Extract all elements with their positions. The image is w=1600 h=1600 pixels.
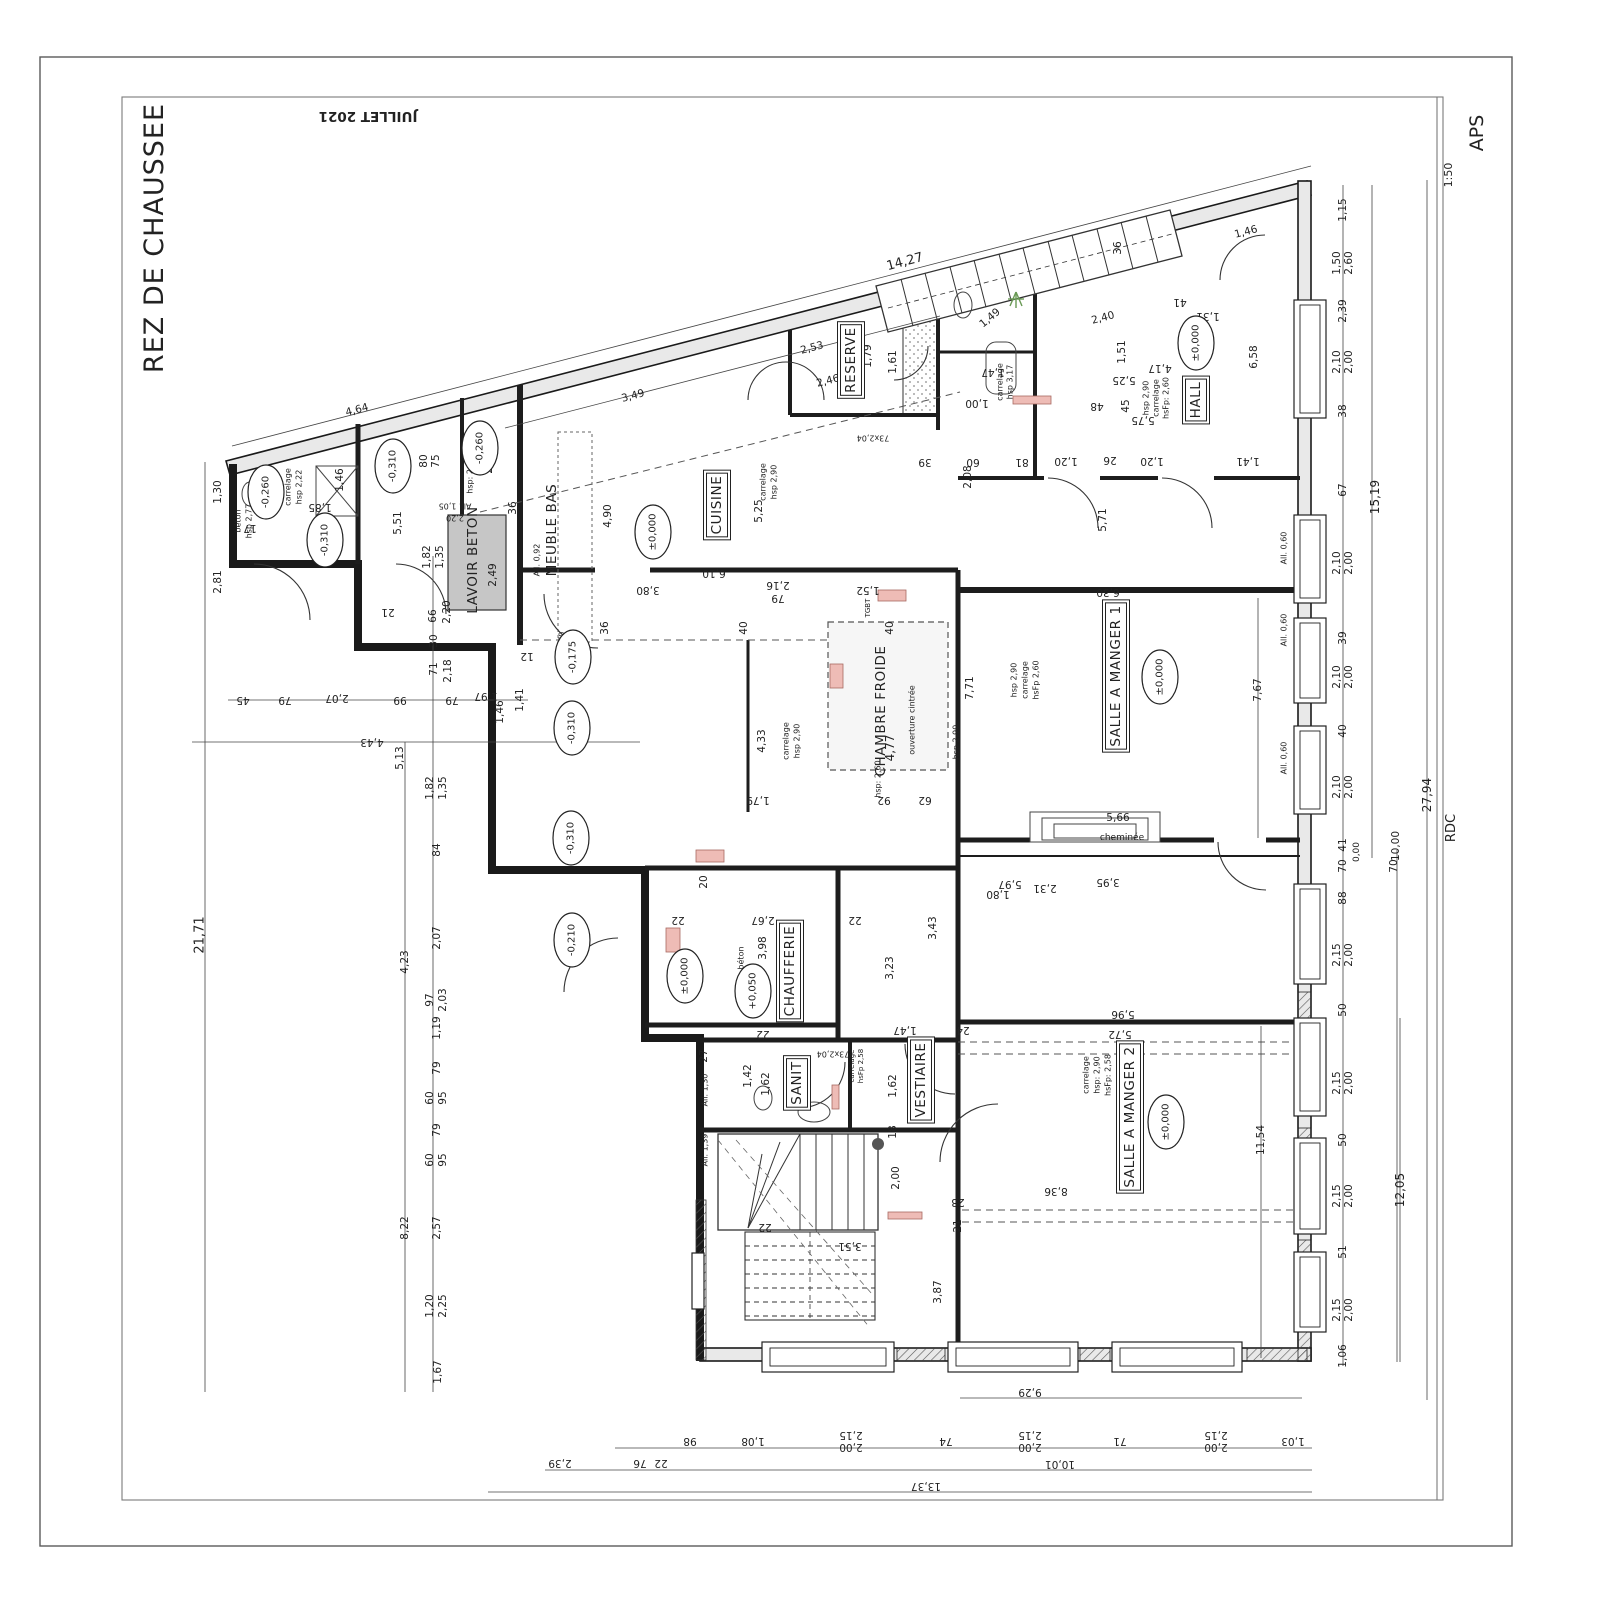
level-marker-value: ±0,000 bbox=[1161, 1103, 1172, 1140]
dimension-label: 6,58 bbox=[1248, 345, 1260, 368]
dimension-label: béton bbox=[736, 946, 746, 969]
dimension-label: 92 bbox=[877, 794, 890, 806]
dimension-label: 7,71 bbox=[964, 676, 976, 699]
dimension-label: 3,43 bbox=[927, 916, 939, 939]
dimension-label: 2,15 bbox=[1331, 1298, 1343, 1321]
dimension-label: 75 bbox=[430, 454, 442, 467]
dimension-label: 2,07 bbox=[431, 926, 443, 949]
door-arc bbox=[1220, 235, 1265, 280]
wall-hatch-pier bbox=[1298, 1240, 1311, 1253]
dimension-label: 81 bbox=[1015, 456, 1028, 468]
dimension-label: 71 bbox=[428, 662, 440, 675]
dimension-label: ouverture cintrée bbox=[907, 685, 917, 755]
dimension-label: carrelage bbox=[1082, 1056, 1091, 1094]
dimension-label: 5,71 bbox=[1097, 508, 1109, 531]
level-marker-value: -0,310 bbox=[320, 524, 331, 556]
dimension-label: carrelage bbox=[284, 468, 293, 506]
level-marker-value: -0,175 bbox=[568, 641, 579, 673]
dimension-label: 18 bbox=[887, 1125, 899, 1138]
dimension-label: hsp 2,90 bbox=[952, 725, 961, 760]
room-label: SALLE A MANGER 1 bbox=[1108, 605, 1124, 746]
dimension-label: 60 bbox=[424, 1091, 436, 1104]
door-arc bbox=[396, 564, 446, 614]
dimension-label: 1,62 bbox=[887, 1074, 899, 1097]
dimension-label: 5,72 bbox=[1108, 1028, 1131, 1040]
dimension-label: 2,00 bbox=[1343, 350, 1355, 373]
top-staircase bbox=[876, 210, 1182, 332]
dimension-label: 8,22 bbox=[399, 1216, 411, 1239]
scale-label: 1:50 bbox=[1442, 163, 1455, 188]
dimension-label: 1,03 bbox=[1281, 1435, 1304, 1447]
room-label: CHAMBRE FROIDE bbox=[873, 645, 889, 776]
door-arc bbox=[1218, 842, 1266, 890]
dimension-label: 2,40 bbox=[1090, 309, 1116, 327]
dimension-label: 22 bbox=[848, 914, 861, 926]
level-marker-value: -0,310 bbox=[566, 822, 577, 854]
dimension-label: All. 0,60 bbox=[1280, 532, 1289, 565]
room-label: CHAUFFERIE bbox=[782, 926, 798, 1017]
dimension-label: 9,29 bbox=[1018, 1386, 1041, 1398]
level-marker-value: ±0,000 bbox=[1191, 324, 1202, 361]
dimension-label: 2,00 bbox=[839, 1441, 862, 1453]
dimension-label: 2,39 bbox=[1337, 299, 1349, 322]
dimension-label: 5,25 bbox=[1112, 374, 1135, 386]
dimension-label: cheminée bbox=[1100, 832, 1145, 843]
dimension-label: 1,50 bbox=[1331, 251, 1343, 274]
dimension-label: 2,00 bbox=[1343, 1184, 1355, 1207]
dimension-label: 79 bbox=[431, 1061, 443, 1074]
dimension-label: 71 bbox=[1113, 1435, 1126, 1447]
dimension-label: 2,00 bbox=[1018, 1441, 1041, 1453]
dimension-label: 11,54 bbox=[1255, 1125, 1267, 1155]
dimension-label: hsp 2,90 bbox=[793, 724, 802, 759]
dimension-label: 2,60 bbox=[1343, 251, 1355, 274]
dimension-label: 3,51 bbox=[838, 1240, 861, 1252]
dimension-label: 45 bbox=[236, 694, 249, 706]
page-title: REZ DE CHAUSSEE bbox=[139, 103, 170, 373]
dimension-label: 51 bbox=[1337, 1245, 1349, 1258]
dimension-label: 1,61 bbox=[887, 350, 899, 373]
dimension-label: 79 bbox=[278, 694, 291, 706]
dimension-label: 40 bbox=[1337, 724, 1349, 737]
dimension-label: 2,10 bbox=[1331, 665, 1343, 688]
dimension-label: 24 bbox=[956, 1024, 970, 1036]
dimension-label: 2,10 bbox=[1331, 775, 1343, 798]
sheet-frame bbox=[40, 57, 1512, 1546]
room-label: LAVOIR BETON bbox=[465, 506, 481, 613]
dimension-label: 2,67 bbox=[751, 914, 774, 926]
wall-hatch-pier bbox=[1298, 992, 1311, 1020]
dimension-label: 2,00 bbox=[1343, 1298, 1355, 1321]
dimension-label: 1,08 bbox=[741, 1435, 764, 1447]
level-marker-value: -0,310 bbox=[388, 450, 399, 482]
dimension-label: 12 bbox=[520, 650, 533, 662]
dimension-label: 4,17 bbox=[1148, 362, 1171, 374]
meuble-bas-outline bbox=[558, 432, 592, 642]
room-label: MEUBLE BAS bbox=[544, 484, 560, 577]
dimension-label: 79 bbox=[771, 592, 784, 604]
floor-plan-sheet: REZ DE CHAUSSEE JUILLET 2021 APS 1:50 RD… bbox=[0, 0, 1600, 1600]
dimension-label: 1,20 bbox=[424, 1294, 436, 1317]
dimension-label: 26 bbox=[1103, 454, 1117, 466]
level-tag: RDC bbox=[1444, 814, 1459, 842]
dimension-label: 8,36 bbox=[1044, 1185, 1068, 1197]
dimension-label: 1,67 bbox=[432, 1360, 444, 1383]
dimension-label: 5,25 bbox=[753, 499, 765, 522]
dimension-label: 2,00 bbox=[1204, 1441, 1227, 1453]
dimension-label: 84 bbox=[431, 843, 443, 857]
dimension-label: 1,20 bbox=[1140, 455, 1163, 467]
phase-label: APS bbox=[1466, 115, 1488, 152]
dimension-label: All. 0,92 bbox=[533, 544, 542, 577]
dimension-label: 2,39 bbox=[548, 1457, 571, 1469]
wall-hatch-pier bbox=[1080, 1348, 1110, 1361]
dimension-label: 2,00 bbox=[1343, 775, 1355, 798]
dimension-label: 1,35 bbox=[437, 776, 449, 799]
dimension-label: 99 bbox=[393, 694, 406, 706]
dimension-label: 21 bbox=[952, 1219, 964, 1232]
dimension-label: 40 bbox=[738, 621, 750, 634]
date-stamp: JUILLET 2021 bbox=[319, 108, 419, 124]
dimension-label: 13,37 bbox=[911, 1480, 941, 1492]
dimension-label: 45 bbox=[1120, 399, 1132, 412]
dimension-label: hsp 2,90 bbox=[770, 465, 779, 500]
dimension-label: 15,19 bbox=[1368, 480, 1382, 514]
dimension-label: 2,15 bbox=[1331, 943, 1343, 966]
dimension-label: 48 bbox=[1090, 400, 1103, 412]
dimension-label: hsFp: 2,60 bbox=[1162, 377, 1171, 419]
room-label: SANIT bbox=[789, 1061, 805, 1105]
level-marker-value: +0,050 bbox=[748, 972, 759, 1009]
dimension-label: 70 bbox=[1337, 859, 1349, 872]
door-arc bbox=[254, 564, 310, 620]
dimension-label: 1,00 bbox=[965, 397, 988, 409]
dimension-label: 7,67 bbox=[1252, 678, 1264, 701]
dimension-label: carrelage bbox=[1152, 379, 1161, 417]
dimension-label: 5,51 bbox=[392, 511, 404, 534]
dimension-label: All. 1,39 bbox=[701, 1134, 710, 1167]
dimension-label: hsp: 2,90 bbox=[1093, 1056, 1102, 1093]
dimension-label: hsFp 2,60 bbox=[1032, 660, 1041, 699]
dimension-label: 20 bbox=[698, 875, 710, 888]
dimension-label: 2,81 bbox=[212, 570, 224, 593]
dimension-label: 1,52 bbox=[856, 584, 879, 596]
dimension-label: 98 bbox=[683, 1435, 696, 1447]
dimension-label: 60 bbox=[966, 456, 979, 468]
dimension-label: 50 bbox=[1337, 1133, 1349, 1146]
dimension-label: 73x2,04 bbox=[857, 434, 890, 443]
dimension-label: 2,00 bbox=[1343, 1071, 1355, 1094]
dimension-label: hsFp: 2,58 bbox=[1104, 1054, 1113, 1096]
left-window bbox=[692, 1253, 704, 1309]
dimension-label: 1,42 bbox=[742, 1064, 754, 1087]
dimension-label: 1,80 bbox=[986, 888, 1009, 900]
dimension-label: 2,53 bbox=[799, 339, 825, 357]
dimension-label: 2,15 bbox=[1331, 1184, 1343, 1207]
dimension-label: hsFp 2,58 bbox=[857, 1049, 865, 1083]
dimension-label: hsp 2,22 bbox=[295, 470, 304, 505]
dimension-label: 4,23 bbox=[399, 950, 411, 973]
dimension-label: 2,25 bbox=[437, 1294, 449, 1317]
dimension-label: 1,46 bbox=[334, 468, 346, 492]
dimension-label: 22 bbox=[758, 1221, 771, 1233]
bottom-staircase bbox=[718, 1134, 884, 1328]
outer-border bbox=[40, 57, 1512, 1546]
level-marker-value: ±0,000 bbox=[1155, 658, 1166, 695]
dimension-label: 0,00 bbox=[1352, 842, 1362, 862]
dimension-label: 41 bbox=[1173, 296, 1186, 308]
dimension-label: 2,15 bbox=[1018, 1429, 1041, 1441]
dimension-label: 27 bbox=[698, 1049, 710, 1062]
room-label: RESERVE bbox=[843, 327, 859, 393]
dimension-label: 1,46 bbox=[1233, 223, 1259, 241]
level-marker-value: -0,210 bbox=[567, 924, 578, 956]
dimension-label: 95 bbox=[437, 1153, 449, 1166]
dimension-label: 4,90 bbox=[602, 504, 614, 527]
dimension-label: 39 bbox=[1337, 631, 1349, 644]
dimension-label: 2,00 bbox=[890, 1166, 902, 1189]
dimension-label: 1,97 bbox=[474, 690, 497, 702]
dimension-label: 66 bbox=[427, 609, 439, 623]
dimension-label: 1,49 bbox=[977, 306, 1003, 330]
dimension-label: 22 bbox=[671, 914, 684, 926]
dimension-label: 28 bbox=[951, 1196, 964, 1208]
dimension-label: 22 bbox=[654, 1457, 667, 1469]
dimension-label: 60 bbox=[424, 1153, 436, 1166]
dimension-label: carrelage bbox=[759, 463, 768, 501]
dimension-label: 1,20 bbox=[1054, 455, 1077, 467]
dimension-label: 1,51 bbox=[1116, 340, 1128, 363]
dimension-label: 14,27 bbox=[885, 250, 925, 274]
dimension-label: 2,15 bbox=[839, 1429, 862, 1441]
dimension-label: All. 1,30 bbox=[701, 1074, 710, 1107]
dimension-label: 95 bbox=[437, 1091, 449, 1104]
dimension-label: 50 bbox=[1337, 1003, 1349, 1016]
dimension-label: 2,10 bbox=[1331, 350, 1343, 373]
door-arc bbox=[748, 362, 786, 400]
dimension-label: 21 bbox=[381, 606, 394, 618]
room-label: CUISINE bbox=[709, 476, 725, 535]
dimension-label: 1,79 bbox=[746, 794, 769, 806]
dimension-label: hsp 2,90 bbox=[1010, 663, 1019, 698]
dimension-label: 3,80 bbox=[636, 584, 659, 596]
dimension-label: 2,20 bbox=[441, 600, 453, 623]
dimension-label: 4,33 bbox=[756, 729, 768, 752]
dimension-label: 3,98 bbox=[757, 936, 769, 959]
dimension-label: 10,01 bbox=[1045, 1458, 1075, 1470]
dimension-label: 27,94 bbox=[1420, 778, 1434, 812]
dimension-label: 10,00 bbox=[1390, 831, 1402, 861]
door-arc bbox=[940, 1104, 998, 1162]
dimension-label: 88 bbox=[1337, 891, 1349, 904]
dimension-label: 1,41 bbox=[514, 688, 526, 711]
level-marker-value: ±0,000 bbox=[680, 957, 691, 994]
dimension-label: 2,18 bbox=[442, 659, 454, 682]
dimension-label: 1,82 bbox=[421, 545, 433, 568]
dimension-label: 36 bbox=[599, 621, 611, 635]
dimension-label: 41 bbox=[1337, 838, 1349, 851]
dimension-label: 39 bbox=[918, 456, 931, 468]
level-marker-value: -0,310 bbox=[567, 712, 578, 744]
dimension-label: 2,20 bbox=[446, 514, 464, 523]
dimension-label: 2,07 bbox=[325, 692, 348, 704]
dimension-label: 73x2,04 bbox=[817, 1050, 850, 1059]
bottom-windows bbox=[762, 1342, 1242, 1372]
dimension-label: 3,87 bbox=[932, 1280, 944, 1303]
dimension-label: 5,13 bbox=[394, 746, 406, 769]
dimension-label: 3,95 bbox=[1096, 876, 1119, 888]
dimension-label: béton bbox=[233, 509, 243, 532]
dimension-label: 2,31 bbox=[1033, 882, 1056, 894]
stair-post bbox=[872, 1138, 884, 1150]
dimension-label: 5,66 bbox=[1106, 812, 1130, 824]
dimension-label: 1,35 bbox=[434, 545, 446, 568]
dimension-label: 38 bbox=[1337, 404, 1349, 417]
door-arc bbox=[1048, 478, 1098, 528]
wall-hatch-pier bbox=[897, 1348, 945, 1361]
dimension-label: 1,85 bbox=[308, 501, 331, 513]
dimension-label: 1,30 bbox=[212, 480, 224, 503]
dimension-label: carrelage bbox=[996, 363, 1005, 401]
dimension-label: 30 bbox=[428, 634, 440, 647]
dimension-label: 2,15 bbox=[1331, 1071, 1343, 1094]
dimension-label: 1,46 bbox=[494, 700, 506, 724]
dimension-label: 2,15 bbox=[1204, 1429, 1227, 1441]
level-marker-value: -0,260 bbox=[475, 432, 486, 464]
dimension-label: 1,19 bbox=[431, 1016, 443, 1039]
dimension-label: 3,23 bbox=[884, 956, 896, 979]
room-label: VESTIAIRE bbox=[913, 1042, 929, 1117]
dimension-label: 1,15 bbox=[1337, 198, 1349, 221]
dimension-label: 62 bbox=[918, 794, 931, 806]
dimension-label: 5,96 bbox=[1111, 1008, 1135, 1020]
room-label: HALL bbox=[1188, 382, 1204, 419]
dimension-label: All. 0,60 bbox=[1280, 742, 1289, 775]
dimension-label: 4,64 bbox=[344, 401, 370, 419]
dimension-label: 97 bbox=[424, 993, 436, 1006]
level-marker-value: ±0,000 bbox=[648, 513, 659, 550]
wall-hatch-pier bbox=[1298, 1332, 1311, 1361]
dimension-label: 36 bbox=[507, 501, 519, 515]
dimension-label: 12,05 bbox=[1393, 1173, 1407, 1207]
dimension-label: 2,03 bbox=[437, 988, 449, 1011]
dimension-label: carrelage bbox=[782, 722, 791, 760]
level-marker-value: -0,260 bbox=[261, 476, 272, 508]
dimension-label: 1,06 bbox=[1337, 1344, 1349, 1368]
dimension-label: 79 bbox=[431, 1123, 443, 1136]
dimension-label: 1,82 bbox=[424, 776, 436, 799]
dimension-label: 2,16 bbox=[766, 579, 790, 591]
dimension-label: 6,30 bbox=[1096, 586, 1119, 598]
dimension-label: TGBT bbox=[864, 598, 872, 619]
door-arc bbox=[1162, 478, 1212, 528]
dimension-label: 21,71 bbox=[193, 916, 208, 953]
dimension-label: hsp 2,90 bbox=[1142, 381, 1151, 416]
dimension-label: 79 bbox=[445, 694, 458, 706]
dimension-label: All. 0,60 bbox=[1280, 614, 1289, 647]
dimension-label: 74 bbox=[939, 1435, 953, 1447]
dimension-label: 2,00 bbox=[1343, 943, 1355, 966]
dimension-label: 76 bbox=[633, 1457, 647, 1469]
dimension-label: 4,43 bbox=[360, 736, 383, 748]
room-label: SALLE A MANGER 2 bbox=[1122, 1046, 1138, 1187]
dimension-label: 2,57 bbox=[431, 1216, 443, 1239]
dimension-label: 67 bbox=[1337, 483, 1349, 496]
dimension-label: 6,10 bbox=[702, 567, 725, 579]
dimension-label: 2,00 bbox=[1343, 665, 1355, 688]
dimension-label: 1,41 bbox=[1236, 455, 1259, 467]
dimension-label: hsp 3,17 bbox=[1006, 365, 1015, 400]
dimension-label: 2,10 bbox=[1331, 551, 1343, 574]
dimension-label: 40 bbox=[884, 621, 896, 634]
dimension-label: carrelage bbox=[1021, 661, 1030, 699]
dimension-label: 1,62 bbox=[760, 1072, 772, 1095]
dimension-label: 1,47 bbox=[893, 1024, 916, 1036]
dimension-label: 2,49 bbox=[487, 563, 499, 586]
dimension-label: 36 bbox=[1112, 241, 1124, 255]
dimension-label: 2,00 bbox=[1343, 551, 1355, 574]
dimension-label: 22 bbox=[756, 1028, 769, 1040]
dimension-label: 3,49 bbox=[620, 387, 646, 405]
dimension-label: 80 bbox=[418, 454, 430, 467]
